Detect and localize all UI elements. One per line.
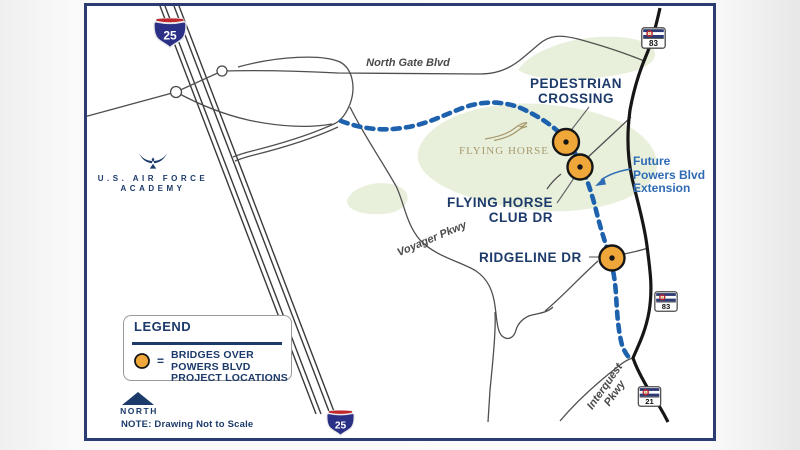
air-force-wings-icon xyxy=(139,153,167,169)
i25-bottom-number: 25 xyxy=(335,421,347,432)
scale-note: NOTE: Drawing Not to Scale xyxy=(121,419,253,430)
map-screenshot: 25 25 83 83 21 North Gate Blvd xyxy=(0,0,800,450)
legend-bridge-marker-icon xyxy=(133,352,151,370)
air-force-academy-label: U.S. AIR FORCE ACADEMY xyxy=(92,174,214,194)
i25-top-number: 25 xyxy=(163,29,177,43)
co-83-shield-icon: 83 xyxy=(654,291,678,312)
flying-horse-club-dr-label: FLYING HORSE CLUB DR xyxy=(433,195,553,225)
co-21-shield-icon: 21 xyxy=(637,386,662,407)
north-gate-blvd-label: North Gate Blvd xyxy=(352,57,464,69)
co83-top-number: 83 xyxy=(649,39,658,48)
flying-horse-logo-label: FLYING HORSE xyxy=(448,145,560,157)
ridgeline-dr-label: RIDGELINE DR xyxy=(479,250,582,265)
legend-rule xyxy=(132,342,282,345)
co83-mid-number: 83 xyxy=(662,302,670,311)
legend-box: LEGEND = BRIDGES OVER POWERS BLVD PROJEC… xyxy=(123,315,292,381)
pedestrian-crossing-label: PEDESTRIAN CROSSING xyxy=(518,76,634,106)
north-label: NORTH xyxy=(120,406,158,416)
i25-shield-icon: 25 xyxy=(153,18,187,48)
co21-number: 21 xyxy=(645,397,654,406)
i25-shield-icon: 25 xyxy=(326,410,355,436)
legend-equals: = xyxy=(157,354,164,368)
legend-title: LEGEND xyxy=(134,319,191,334)
future-powers-blvd-extension-label: Future Powers Blvd Extension xyxy=(633,155,705,196)
co-83-shield-icon: 83 xyxy=(641,27,666,49)
legend-description: BRIDGES OVER POWERS BLVD PROJECT LOCATIO… xyxy=(171,350,288,385)
north-indicator: NORTH xyxy=(120,392,158,416)
